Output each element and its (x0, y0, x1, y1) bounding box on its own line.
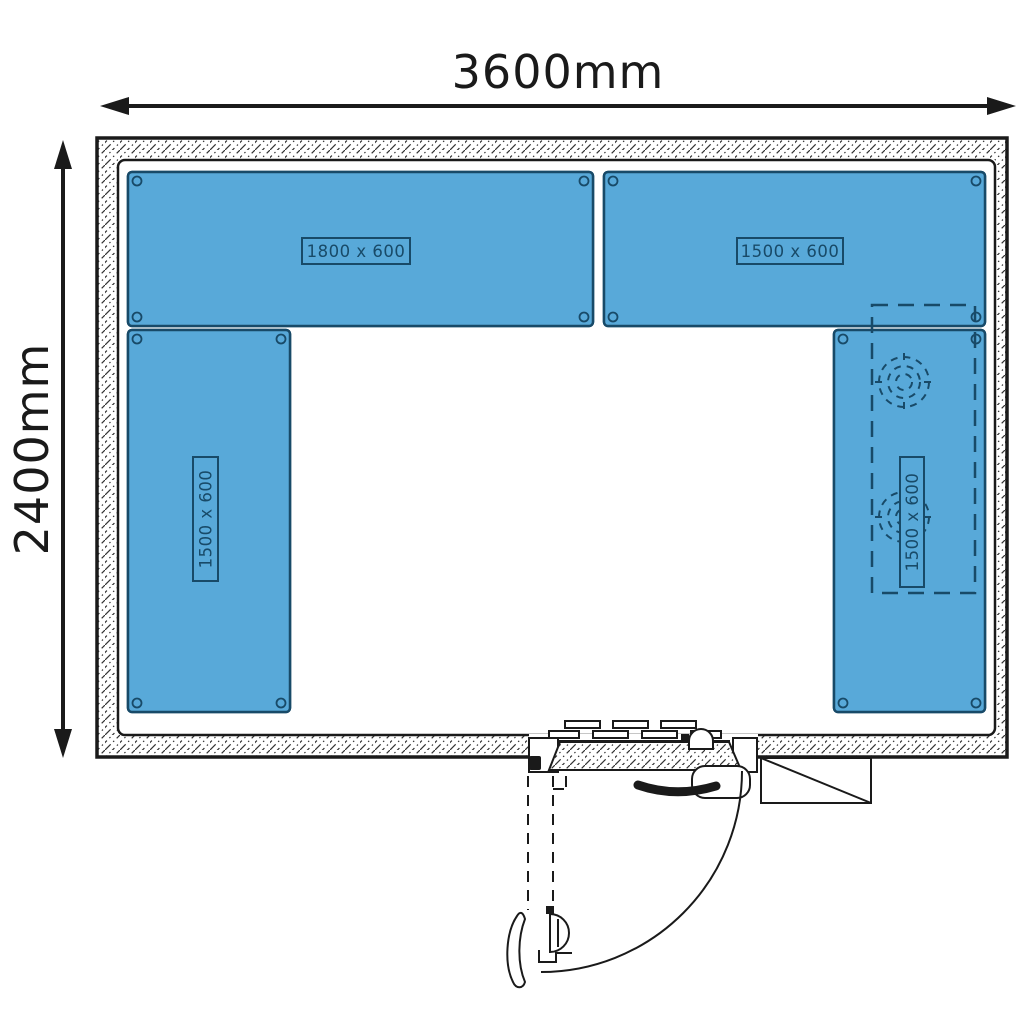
dimension-height: 2400mm (5, 140, 72, 758)
door-open-knob-icon (550, 914, 569, 952)
door-swing-arc (541, 771, 742, 972)
bench-label-left: 1500 x 600 (193, 457, 218, 581)
bench-label-text: 1500 x 600 (903, 473, 922, 572)
arrow-up-icon (54, 140, 72, 169)
floor-plan-svg: 3600mm 2400mm (0, 0, 1024, 1024)
bench-label-top-left: 1800 x 600 (302, 238, 410, 264)
dimension-width: 3600mm (100, 45, 1016, 115)
bench-label-text: 1500 x 600 (741, 242, 840, 261)
arrow-down-icon (54, 729, 72, 758)
dimension-width-label: 3600mm (452, 45, 665, 99)
floor-plan: 3600mm 2400mm (0, 0, 1024, 1024)
bench-label-text: 1500 x 600 (197, 470, 216, 569)
door-open-position (507, 776, 572, 987)
door-assembly (507, 721, 758, 987)
door-handle-icon (638, 785, 716, 792)
arrow-right-icon (987, 97, 1016, 115)
arrow-left-icon (100, 97, 129, 115)
dimension-height-label: 2400mm (5, 343, 59, 556)
door-step (761, 758, 871, 803)
bench-label-right: 1500 x 600 (900, 457, 924, 587)
bench-label-top-right: 1500 x 600 (737, 238, 843, 264)
door-hinge-icon (529, 756, 541, 770)
bench-label-text: 1800 x 600 (307, 242, 406, 261)
